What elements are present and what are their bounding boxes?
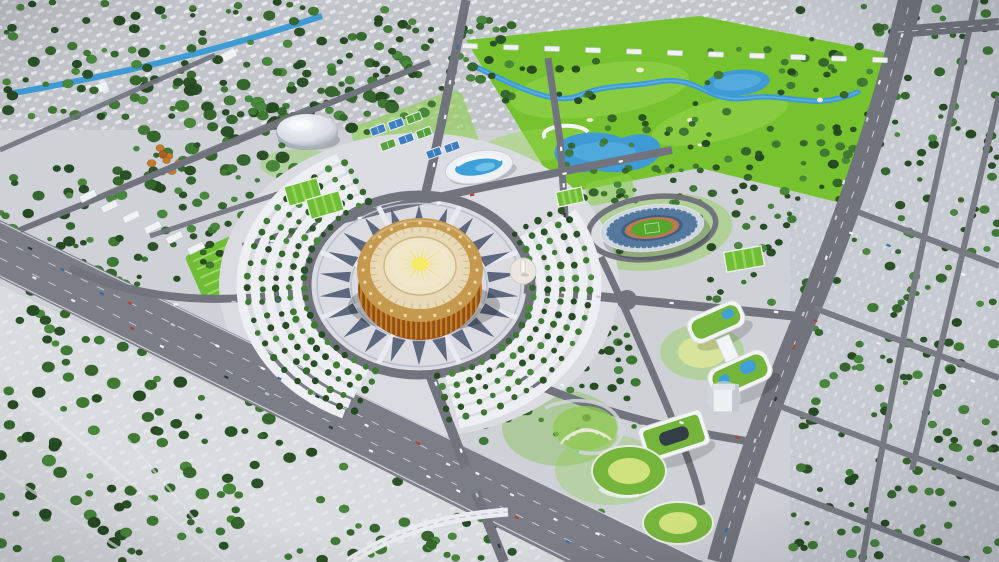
scene-svg: [0, 0, 999, 562]
masterplan-render: Aerial 3D rendering of an urban sports-p…: [0, 0, 999, 562]
vignette: [0, 0, 999, 562]
